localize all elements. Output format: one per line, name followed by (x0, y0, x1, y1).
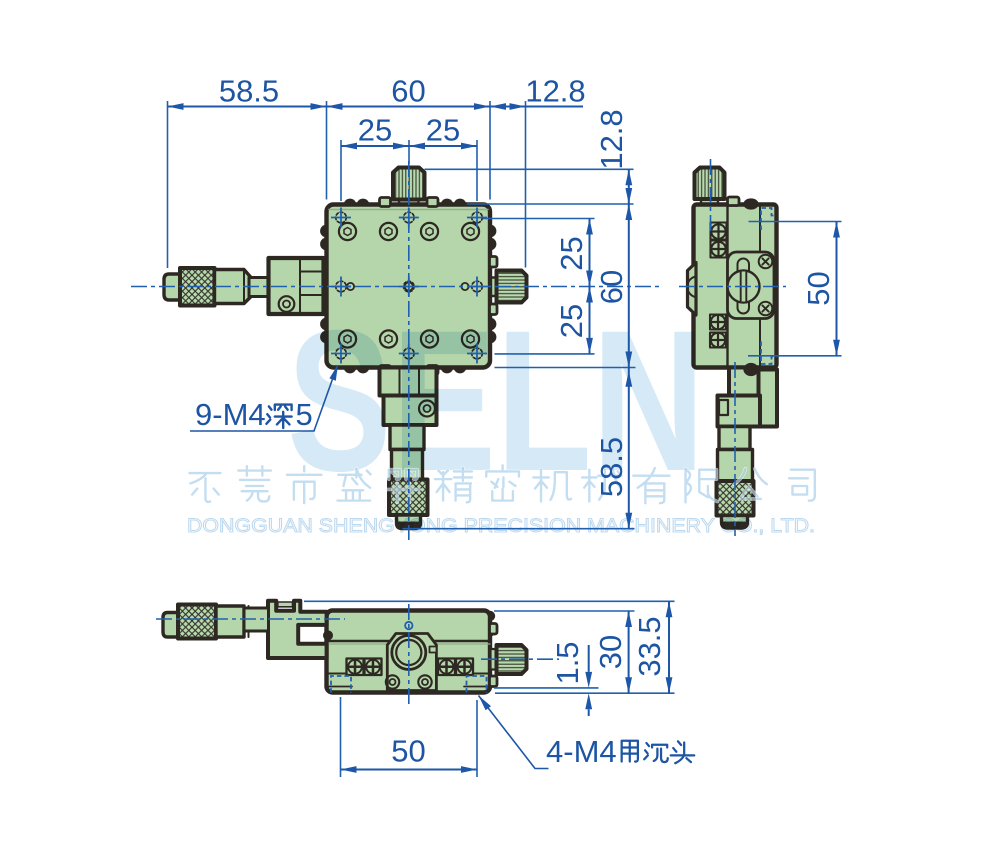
svg-text:25: 25 (554, 236, 589, 270)
svg-text:9-M4: 9-M4 (195, 397, 266, 432)
svg-text:58.5: 58.5 (219, 74, 279, 109)
svg-text:12.8: 12.8 (594, 109, 629, 169)
svg-text:1.5: 1.5 (550, 641, 585, 684)
svg-text:33.5: 33.5 (632, 616, 667, 676)
svg-text:60: 60 (391, 74, 425, 109)
svg-text:50: 50 (801, 271, 836, 305)
svg-text:25: 25 (426, 113, 460, 148)
svg-text:4-M4: 4-M4 (546, 734, 617, 769)
svg-text:25: 25 (554, 304, 589, 338)
svg-text:12.8: 12.8 (525, 74, 585, 109)
svg-text:60: 60 (594, 270, 629, 304)
svg-text:50: 50 (391, 734, 425, 769)
svg-text:30: 30 (593, 635, 628, 669)
svg-text:5: 5 (296, 397, 313, 432)
svg-text:58.5: 58.5 (594, 437, 629, 497)
svg-text:25: 25 (358, 113, 392, 148)
